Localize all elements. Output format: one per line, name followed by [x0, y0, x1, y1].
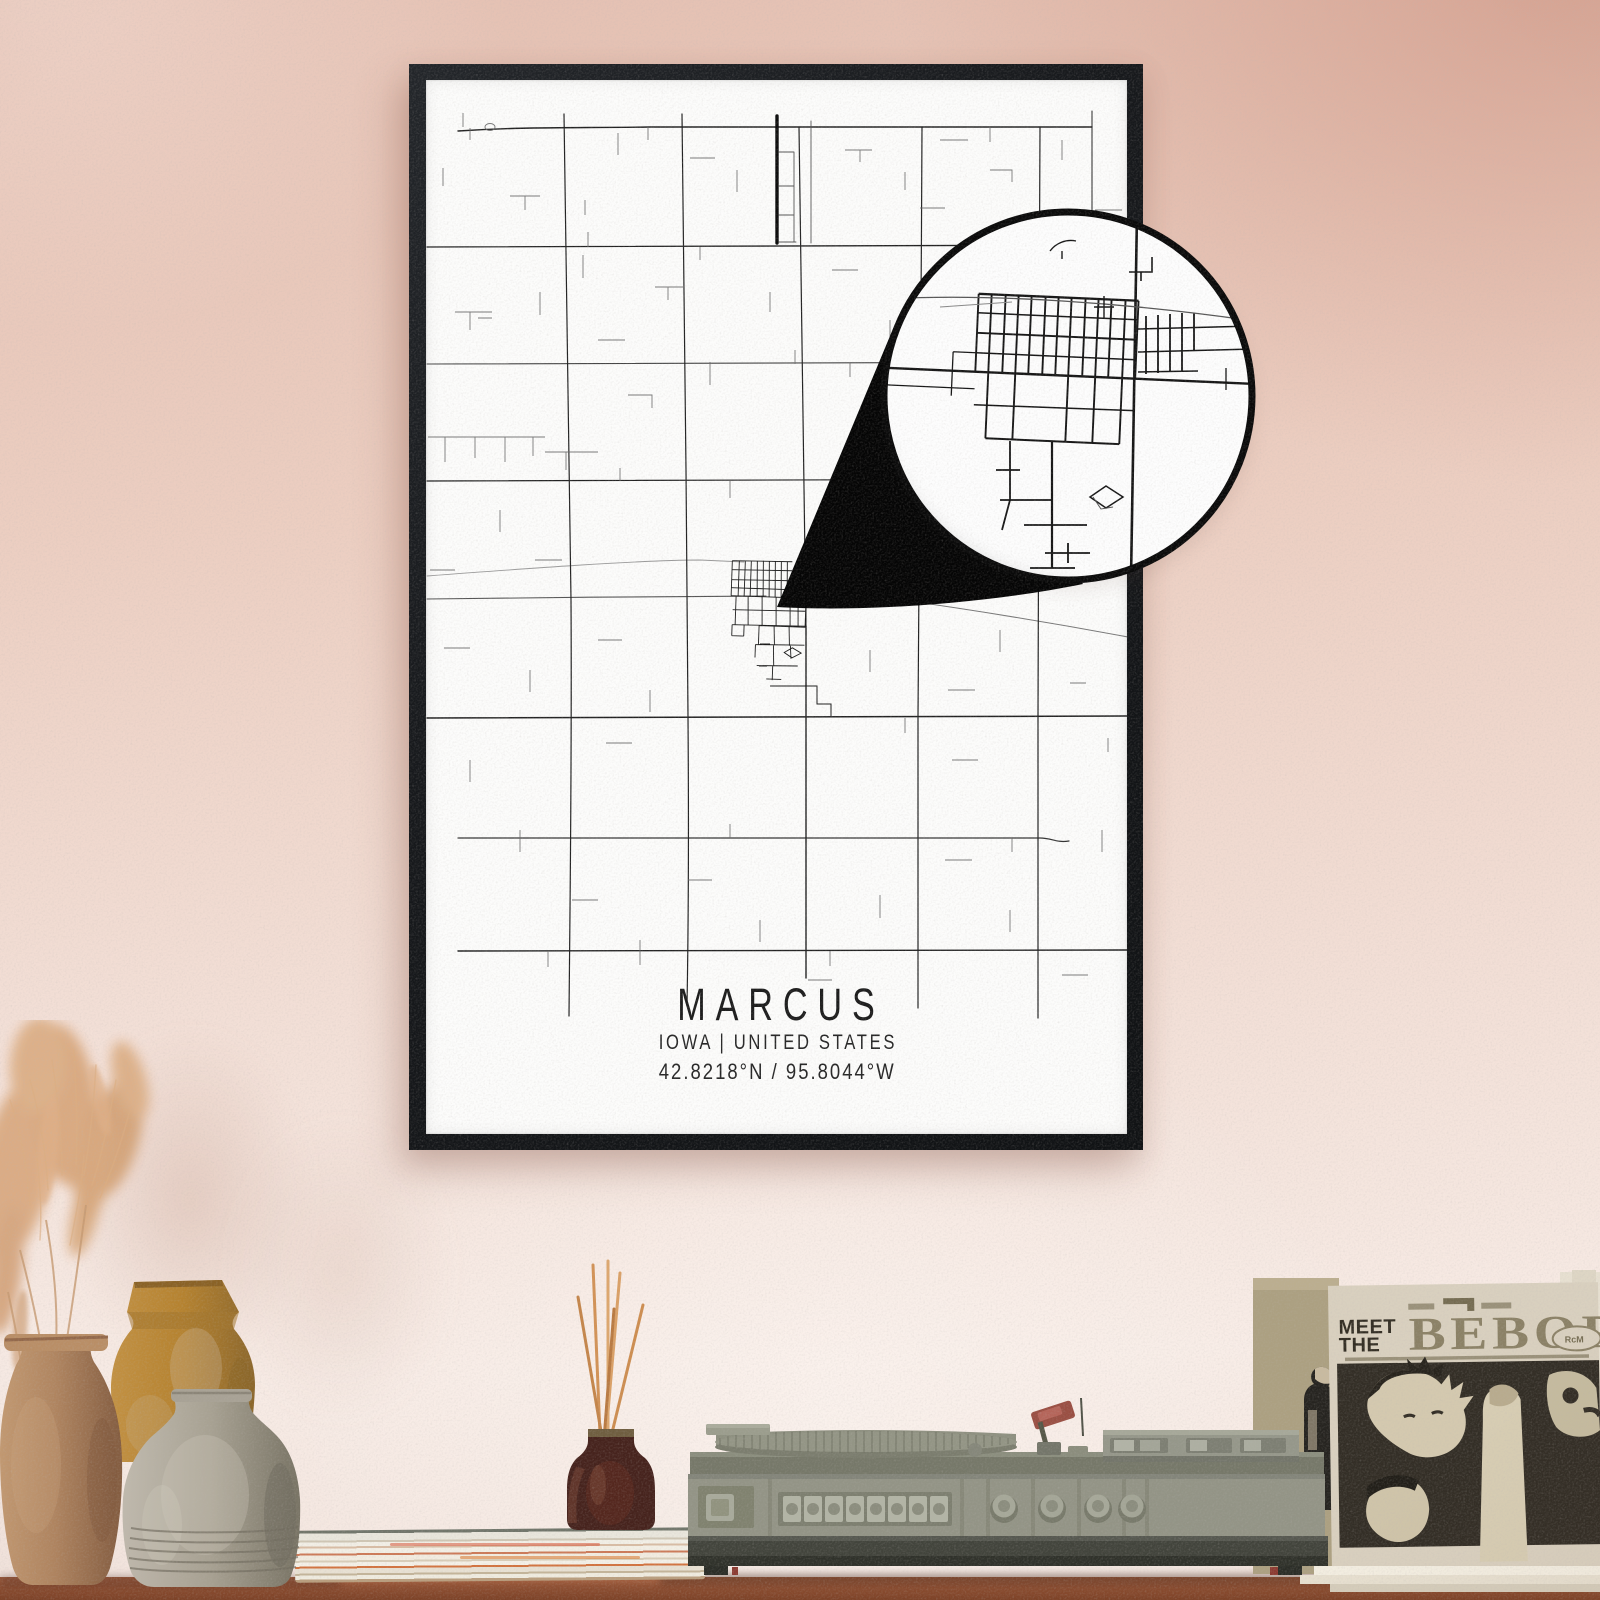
svg-text:RcM: RcM — [1565, 1334, 1584, 1344]
svg-text:THE: THE — [1339, 1334, 1381, 1357]
